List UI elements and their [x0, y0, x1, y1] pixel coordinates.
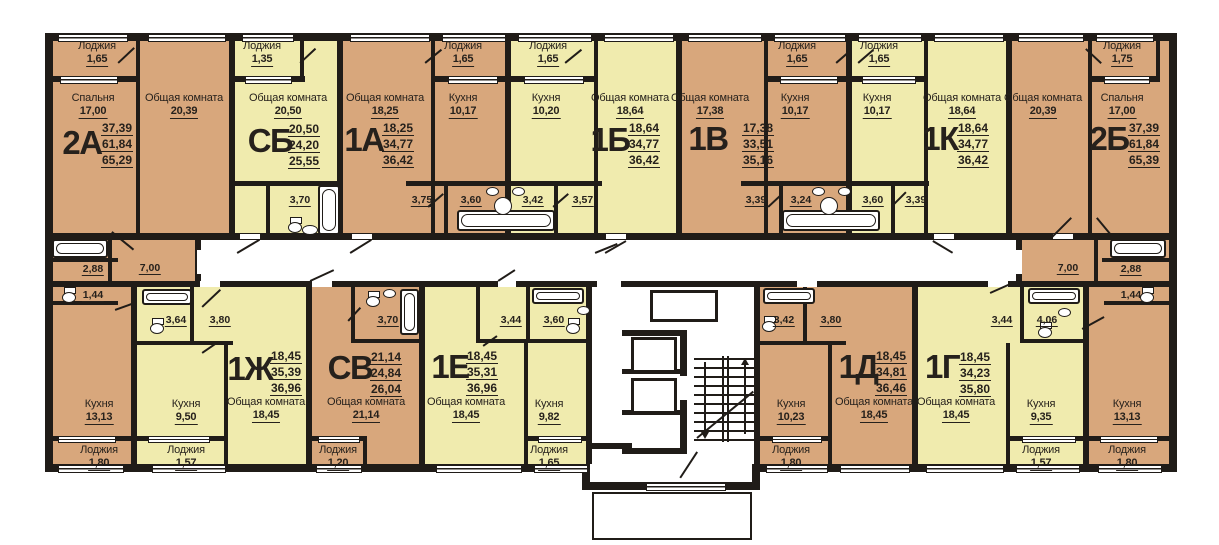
apartment-areas: 17,3833,5135,16 — [742, 121, 774, 169]
window — [318, 436, 360, 443]
door-opening — [1016, 250, 1022, 274]
window — [926, 465, 1004, 473]
wet-area-value: 3,75 — [411, 194, 433, 207]
wall — [406, 181, 602, 186]
wall — [1169, 33, 1177, 472]
sink-icon — [820, 197, 838, 215]
window — [772, 436, 822, 443]
apartment-area-value: 36,96 — [466, 381, 498, 396]
room-label: Лоджия1,80 — [772, 444, 810, 471]
sink-icon — [812, 187, 825, 196]
wall — [1102, 258, 1177, 262]
apartment-areas: 18,4534,2335,80 — [959, 350, 991, 398]
room-name: Общая комната — [227, 396, 305, 409]
room-label: Кухня13,13 — [1113, 398, 1142, 425]
apartment-code: 1Б — [590, 121, 629, 159]
apartment-code: 2А — [62, 124, 101, 162]
wet-area-value: 3,42 — [522, 194, 544, 207]
wall — [590, 443, 632, 449]
room-label: Лоджия1,80 — [1108, 444, 1146, 471]
apartment-area-value: 34,77 — [957, 137, 989, 152]
room-area: 1,65 — [868, 53, 891, 67]
apartment-area-value: 35,39 — [270, 365, 302, 380]
door-opening — [597, 281, 621, 287]
apartment-area-value: 35,31 — [466, 365, 498, 380]
wall — [476, 287, 480, 341]
room-label: Спальня17,00 — [1101, 92, 1144, 119]
wet-area-value: 3,39 — [905, 194, 927, 207]
room-name: Лоджия — [530, 444, 568, 457]
wet-area-value: 3,60 — [460, 194, 482, 207]
room-name: Кухня — [781, 92, 810, 105]
room-name: Лоджия — [1108, 444, 1146, 457]
window — [1104, 76, 1150, 84]
apartment-area-value: 24,84 — [370, 366, 402, 381]
window — [934, 34, 1004, 42]
apartment-areas: 18,2534,7736,42 — [382, 121, 414, 169]
wet-area-value: 3,57 — [572, 194, 594, 207]
door-opening — [240, 234, 260, 239]
room-area: 1,80 — [780, 457, 803, 471]
wall — [741, 181, 929, 186]
wall — [828, 345, 832, 464]
apartment-areas: 18,4535,3136,96 — [466, 349, 498, 397]
wet-area-value: 3,60 — [862, 194, 884, 207]
wall — [524, 343, 528, 464]
apartment-area-value: 18,64 — [628, 121, 660, 136]
wet-area-value: 3,70 — [289, 194, 311, 207]
wall — [912, 287, 918, 464]
wall — [419, 287, 425, 464]
toilet-icon — [62, 287, 76, 303]
bathtub-icon — [532, 288, 584, 304]
apartment-area-value: 65,39 — [1128, 153, 1160, 168]
room-area: 18,25 — [371, 105, 400, 119]
wet-area-value: 7,00 — [139, 262, 161, 275]
room-area: 1,80 — [1116, 457, 1139, 471]
room-area: 17,38 — [696, 105, 725, 119]
wet-area-value: 3,70 — [377, 314, 399, 327]
wall — [622, 330, 686, 336]
floor-plan: Межквартирный коридор 48,60 Лифтовый хол… — [0, 0, 1219, 545]
room-area: 1,65 — [537, 53, 560, 67]
room-area: 10,17 — [781, 105, 810, 119]
bathtub-icon — [52, 239, 108, 258]
apartment-area-value: 20,50 — [288, 122, 320, 137]
room-name: Кухня — [172, 398, 200, 411]
room-name: Общая комната — [346, 92, 424, 105]
room-name: Лоджия — [319, 444, 357, 457]
sink-icon — [383, 289, 396, 298]
room-area: 1,20 — [327, 457, 350, 471]
apartment-area-value: 36,42 — [628, 153, 660, 168]
room-area: 13,13 — [1113, 411, 1142, 425]
room-name: Кухня — [85, 398, 114, 411]
room-name: Кухня — [1113, 398, 1142, 411]
window — [1022, 436, 1076, 443]
stair-tread — [694, 439, 754, 441]
window — [688, 34, 762, 42]
room-label: Общая комната20,50 — [249, 92, 327, 119]
apartment-areas: 37,3961,8465,39 — [1128, 121, 1160, 169]
wet-area-value: 3,80 — [820, 314, 842, 327]
room-name: Лоджия — [772, 444, 810, 457]
room-name: Лоджия — [1103, 40, 1141, 53]
wall — [1006, 33, 1012, 240]
door-opening — [498, 281, 516, 287]
room-label: Кухня10,17 — [863, 92, 892, 119]
window — [436, 465, 522, 473]
room-label: Кухня10,23 — [777, 398, 806, 425]
room-area: 21,14 — [352, 409, 381, 423]
wall — [229, 33, 235, 240]
window — [60, 76, 118, 84]
apartment-area-value: 35,16 — [742, 153, 774, 168]
wet-area-value: 1,44 — [82, 289, 104, 302]
window — [780, 76, 838, 84]
apartment-areas: 18,6434,7736,42 — [957, 121, 989, 169]
apartment-area-value: 33,51 — [742, 137, 774, 152]
room-name: Общая комната — [145, 92, 223, 105]
room-area: 1,57 — [175, 457, 198, 471]
window — [148, 436, 210, 443]
room-area: 20,39 — [1029, 105, 1058, 119]
window — [448, 76, 498, 84]
room-label: Общая комната17,38 — [671, 92, 749, 119]
wall — [363, 436, 367, 464]
wet-area-value: 7,00 — [1057, 262, 1079, 275]
wall — [351, 339, 423, 343]
room-area: 18,64 — [948, 105, 977, 119]
wall — [300, 33, 304, 78]
room-area: 1,35 — [251, 53, 274, 67]
room-area: 10,17 — [449, 105, 478, 119]
apartment-area-value: 35,80 — [959, 382, 991, 397]
wall — [760, 341, 846, 345]
bathtub-icon — [142, 289, 192, 305]
wet-area-value: 3,24 — [790, 194, 812, 207]
room-name: Лоджия — [243, 40, 281, 53]
apartment-code: 1Г — [925, 348, 959, 386]
apartment-area-value: 18,45 — [466, 349, 498, 364]
room-name: Лоджия — [78, 40, 116, 53]
apartment-area-value: 65,29 — [101, 153, 133, 168]
room-label: Лоджия1,65 — [778, 40, 816, 67]
room-name: Кухня — [777, 398, 806, 411]
wet-area-value: 3,60 — [543, 314, 565, 327]
room-label: Кухня10,20 — [532, 92, 561, 119]
wet-area-value: 2,88 — [1120, 263, 1142, 276]
window — [245, 76, 292, 84]
apartment-area-value: 21,14 — [370, 350, 402, 365]
door-opening — [934, 234, 954, 239]
room-label: Общая комната18,45 — [227, 396, 305, 423]
room-name: Общая комната — [671, 92, 749, 105]
room-name: Общая комната — [249, 92, 327, 105]
room-area: 1,65 — [538, 457, 561, 471]
door-opening — [1053, 234, 1073, 239]
wall — [476, 339, 590, 343]
wall — [266, 186, 270, 233]
room-name: Общая комната — [427, 396, 505, 409]
apartment-area-value: 37,39 — [101, 121, 133, 136]
room-name: Кухня — [863, 92, 892, 105]
window — [862, 76, 916, 84]
room-area: 20,50 — [274, 105, 303, 119]
room-name: Кухня — [1027, 398, 1055, 411]
room-area: 1,65 — [452, 53, 475, 67]
wall — [680, 400, 687, 454]
room-name: Лоджия — [1022, 444, 1060, 457]
wet-area-value: 3,64 — [165, 314, 187, 327]
toilet-icon — [366, 291, 380, 307]
room-area: 17,00 — [1108, 105, 1137, 119]
sink-icon — [838, 187, 851, 196]
bathtub-icon — [763, 288, 815, 304]
bathtub-icon — [1028, 288, 1080, 304]
room-label: Лоджия1,35 — [243, 40, 281, 67]
wet-area-value: 1,44 — [1120, 289, 1142, 302]
elevator-shaft — [631, 378, 677, 414]
window — [148, 34, 226, 42]
wall — [526, 287, 530, 341]
apartment-area-value: 36,46 — [875, 381, 907, 396]
room-label: Лоджия1,57 — [1022, 444, 1060, 471]
apartment-area-value: 18,45 — [875, 349, 907, 364]
room-label: Общая комната18,45 — [427, 396, 505, 423]
apartment-areas: 37,3961,8465,29 — [101, 121, 133, 169]
apartment-code: 1Д — [839, 348, 878, 386]
room-area: 20,39 — [170, 105, 199, 119]
room-area: 18,64 — [616, 105, 645, 119]
apartment-area-value: 37,39 — [1128, 121, 1160, 136]
apartment-code: 1Ж — [227, 350, 272, 388]
room-name: Кухня — [532, 92, 561, 105]
toilet-icon — [288, 217, 302, 233]
window — [1018, 34, 1084, 42]
room-label: Лоджия1,80 — [80, 444, 118, 471]
window — [538, 436, 582, 443]
window — [646, 483, 726, 491]
apartment-areas: 20,5024,2025,55 — [288, 122, 320, 170]
room-label: Спальня17,00 — [72, 92, 115, 119]
apartment-code: 1В — [688, 120, 727, 158]
room-label: Общая комната21,14 — [327, 396, 405, 423]
window — [840, 465, 910, 473]
apartment-area-value: 18,45 — [959, 350, 991, 365]
door-opening — [606, 234, 626, 239]
apartment-code: 1Е — [431, 348, 468, 386]
wet-area-value: 3,39 — [745, 194, 767, 207]
sink-icon — [486, 187, 499, 196]
room-name: Кухня — [449, 92, 478, 105]
apartment-areas: 18,4535,3936,96 — [270, 349, 302, 397]
apartment-area-value: 24,20 — [288, 138, 320, 153]
toilet-icon — [150, 318, 164, 334]
room-label: Кухня9,50 — [172, 398, 200, 425]
room-area: 18,45 — [860, 409, 889, 423]
room-label: Кухня10,17 — [449, 92, 478, 119]
sink-icon — [302, 225, 318, 235]
wet-area-value: 3,80 — [209, 314, 231, 327]
wall — [45, 258, 118, 262]
window — [1100, 436, 1158, 443]
room-label: Общая комната18,45 — [835, 396, 913, 423]
wall — [136, 41, 140, 233]
wall — [1020, 339, 1087, 343]
room-name: Лоджия — [778, 40, 816, 53]
room-area: 1,65 — [786, 53, 809, 67]
apartment-area-value: 61,84 — [101, 137, 133, 152]
apartment-area-value: 36,42 — [382, 153, 414, 168]
door-opening — [797, 281, 817, 287]
apartment-area-value: 34,77 — [382, 137, 414, 152]
room-name: Общая комната — [923, 92, 1001, 105]
room-label: Кухня9,82 — [535, 398, 563, 425]
stair-stringer — [727, 356, 729, 442]
apartment-area-value: 18,45 — [270, 349, 302, 364]
room-label: Общая комната18,64 — [591, 92, 669, 119]
wet-area-value: 2,88 — [82, 263, 104, 276]
room-area: 18,45 — [252, 409, 281, 423]
room-label: Кухня9,35 — [1027, 398, 1055, 425]
room-label: Кухня13,13 — [85, 398, 114, 425]
apartment-area-value: 34,23 — [959, 366, 991, 381]
balcony-railing — [592, 492, 752, 540]
bathtub-icon — [400, 289, 419, 335]
stair-arrow-up-head — [741, 358, 749, 365]
sink-icon — [494, 197, 512, 215]
window — [604, 34, 674, 42]
wall — [676, 33, 682, 240]
door-opening — [200, 281, 220, 287]
toilet-icon — [566, 318, 580, 334]
door-opening — [312, 281, 332, 287]
window — [524, 76, 584, 84]
apartment-code: СБ — [248, 122, 293, 160]
room-label: Лоджия1,65 — [529, 40, 567, 67]
elevator-shaft — [650, 290, 718, 322]
wall — [891, 186, 895, 233]
room-area: 1,57 — [1030, 457, 1053, 471]
wet-area-value: 4,06 — [1036, 314, 1058, 327]
wall — [680, 330, 687, 376]
room-label: Общая комната18,64 — [923, 92, 1001, 119]
room-area: 9,82 — [538, 411, 561, 425]
apartment-area-value: 61,84 — [1128, 137, 1160, 152]
room-name: Кухня — [535, 398, 563, 411]
room-label: Лоджия1,65 — [530, 444, 568, 471]
apartment-code: 1А — [344, 121, 383, 159]
elevator-shaft — [631, 337, 677, 373]
room-label: Лоджия1,57 — [167, 444, 205, 471]
apartment-area-value: 34,77 — [628, 137, 660, 152]
apartment-area-value: 17,38 — [742, 121, 774, 136]
apartment-code: СВ — [328, 349, 373, 387]
sink-icon — [577, 306, 590, 315]
apartment-code: 2Б — [1089, 120, 1128, 158]
wall — [1094, 240, 1098, 281]
room-area: 9,50 — [175, 411, 198, 425]
room-name: Лоджия — [529, 40, 567, 53]
wet-area-value: 3,42 — [773, 314, 795, 327]
wall — [1020, 287, 1024, 343]
apartment-area-value: 34,81 — [875, 365, 907, 380]
room-name: Спальня — [72, 92, 115, 105]
bathtub-icon — [318, 185, 340, 235]
room-label: Лоджия1,65 — [78, 40, 116, 67]
room-area: 1,75 — [1111, 53, 1134, 67]
room-area: 13,13 — [85, 411, 114, 425]
apartment-area-value: 36,42 — [957, 153, 989, 168]
apartment-code: 1К — [922, 120, 958, 158]
room-name: Лоджия — [860, 40, 898, 53]
room-name: Общая комната — [1004, 92, 1082, 105]
room-label: Общая комната18,25 — [346, 92, 424, 119]
wall — [444, 186, 448, 233]
door-opening — [197, 250, 203, 274]
room-area: 18,45 — [942, 409, 971, 423]
apartment-area-value: 36,96 — [270, 381, 302, 396]
room-label: Лоджия1,65 — [444, 40, 482, 67]
room-name: Лоджия — [80, 444, 118, 457]
room-area: 18,45 — [452, 409, 481, 423]
room-name: Общая комната — [835, 396, 913, 409]
bathtub-icon — [1110, 239, 1166, 258]
window — [350, 34, 430, 42]
wall — [1006, 343, 1010, 464]
stair-arrow-down — [704, 362, 706, 432]
apartment-areas: 18,4534,8136,46 — [875, 349, 907, 397]
room-area: 10,23 — [777, 411, 806, 425]
wall — [846, 33, 852, 240]
room-area: 10,20 — [532, 105, 561, 119]
room-label: Общая комната20,39 — [145, 92, 223, 119]
room-name: Лоджия — [444, 40, 482, 53]
door-opening — [352, 234, 372, 239]
room-name: Спальня — [1101, 92, 1144, 105]
wall — [1156, 33, 1160, 78]
apartment-area-value: 18,64 — [957, 121, 989, 136]
apartment-area-value: 18,25 — [382, 121, 414, 136]
room-area: 1,80 — [88, 457, 111, 471]
room-label: Лоджия1,20 — [319, 444, 357, 471]
wet-area-value: 3,44 — [991, 314, 1013, 327]
apartment-areas: 18,6434,7736,42 — [628, 121, 660, 169]
room-label: Общая комната20,39 — [1004, 92, 1082, 119]
apartment-area-value: 25,55 — [288, 154, 320, 169]
room-label: Лоджия1,65 — [860, 40, 898, 67]
room-label: Лоджия1,75 — [1103, 40, 1141, 67]
room-area: 1,65 — [86, 53, 109, 67]
wet-area-value: 3,44 — [500, 314, 522, 327]
room-area: 10,17 — [863, 105, 892, 119]
room-name: Общая комната — [591, 92, 669, 105]
apartment-area-value: 26,04 — [370, 382, 402, 397]
apartment-areas: 21,1424,8426,04 — [370, 350, 402, 398]
window — [58, 436, 116, 443]
room-area: 17,00 — [79, 105, 108, 119]
sink-icon — [1058, 308, 1071, 317]
room-label: Общая комната18,45 — [917, 396, 995, 423]
room-name: Лоджия — [167, 444, 205, 457]
stair-stringer — [722, 356, 724, 442]
room-area: 9,35 — [1030, 411, 1053, 425]
room-label: Кухня10,17 — [781, 92, 810, 119]
